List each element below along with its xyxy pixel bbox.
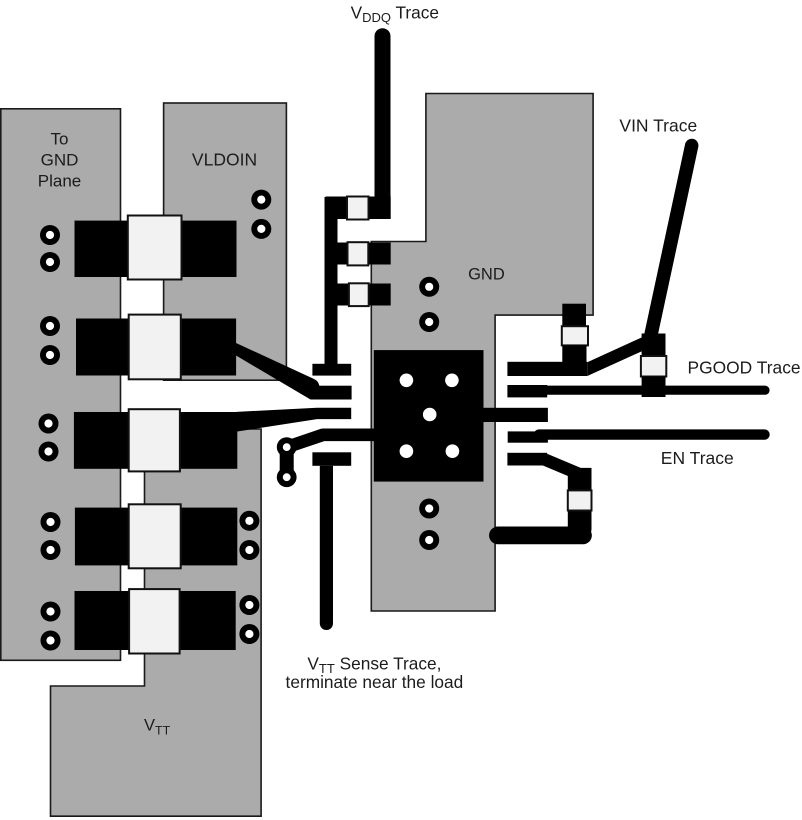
svg-text:GND: GND	[41, 151, 79, 170]
svg-text:PGOOD Trace: PGOOD Trace	[688, 357, 801, 377]
svg-text:EN Trace: EN Trace	[661, 448, 734, 468]
svg-text:VLDOIN: VLDOIN	[192, 149, 257, 169]
svg-text:GND: GND	[468, 265, 505, 283]
svg-text:terminate near the load: terminate near the load	[286, 672, 464, 692]
svg-text:VIN Trace: VIN Trace	[619, 116, 697, 136]
svg-text:To: To	[51, 129, 69, 148]
svg-text:Plane: Plane	[38, 172, 81, 191]
